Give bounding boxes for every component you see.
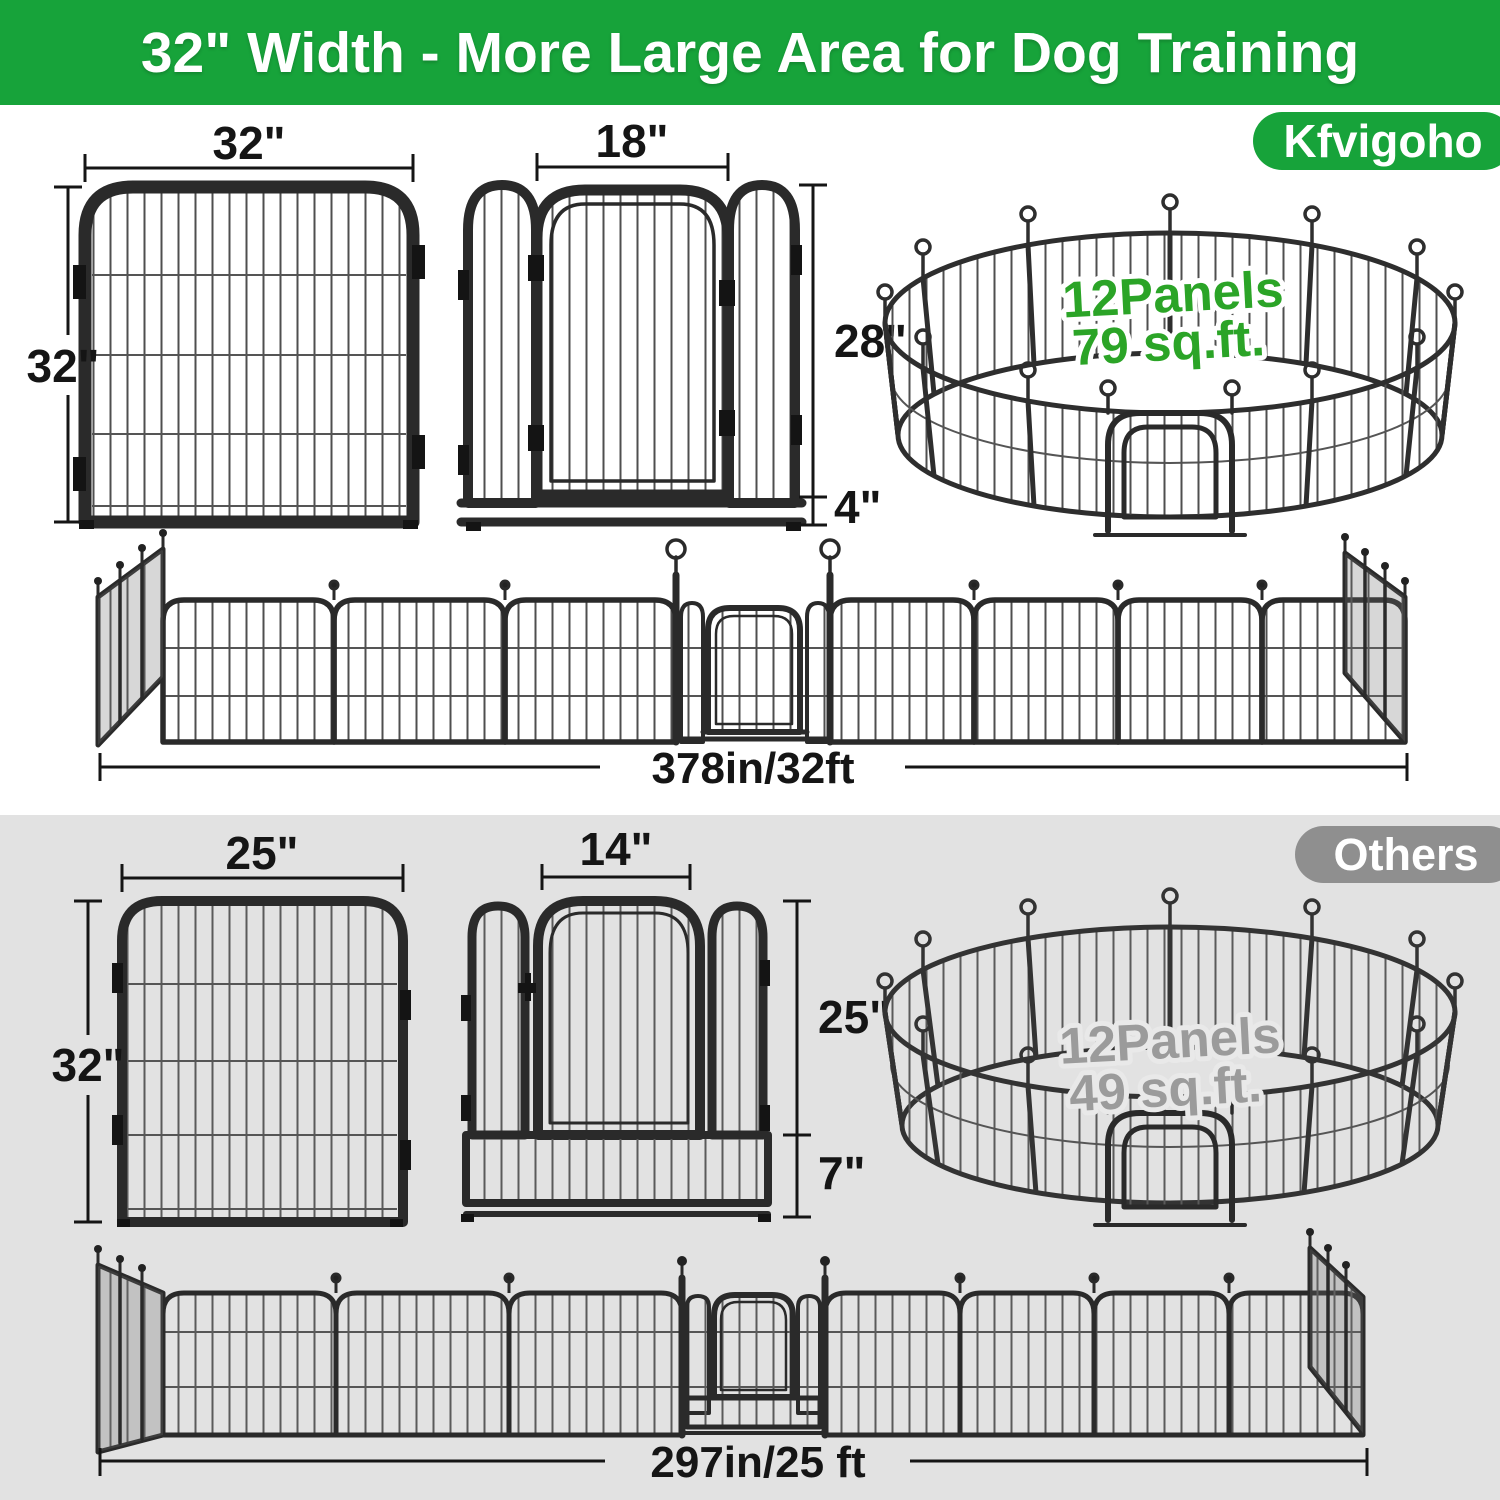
others-section: 25" 32" 14" 25" 7" (0, 815, 1500, 1500)
fence-row-others: 297in/25 ft (94, 1228, 1367, 1487)
door-height-dimension: 25" 7" (783, 901, 891, 1217)
fence-door (667, 540, 839, 742)
header-title: 32" Width - More Large Area for Dog Trai… (141, 20, 1359, 86)
fence-door (677, 1256, 830, 1435)
panel-diagram-others: 25" 32" (52, 827, 411, 1227)
panel-width-label: 25" (226, 827, 299, 879)
fence-length-label: 297in/25 ft (650, 1438, 866, 1487)
fence-post-pins (332, 1274, 1233, 1293)
playpen-ours: 12Panels 79 sq.ft. (878, 195, 1462, 535)
panel-height-label: 32" (27, 340, 100, 392)
fence-length-label: 378in/32ft (652, 744, 855, 793)
door-bottom-gap-label: 4" (834, 481, 881, 533)
panel-diagram-ours: 32" 32" (27, 117, 425, 529)
door-width-dimension: 18" (537, 115, 728, 181)
header-banner: 32" Width - More Large Area for Dog Trai… (0, 0, 1500, 105)
playpen-others: 12Panels 49 sq.ft. (878, 889, 1462, 1225)
door-bottom-gap-label: 7" (818, 1147, 865, 1199)
door-panel-diagram-ours: 18" 28" 4" (458, 115, 907, 533)
panel-width-dimension: 25" (122, 827, 403, 892)
door-height-label: 25" (818, 991, 891, 1043)
panel-height-label: 32" (52, 1039, 125, 1091)
fence-row-ours: 378in/32ft (94, 529, 1409, 793)
playpen-caption-ours: 12Panels 79 sq.ft. (1061, 260, 1287, 376)
playpen-area-label: 79 sq.ft. (1071, 309, 1266, 376)
panel-width-label: 32" (213, 117, 286, 169)
door-panel-diagram-others: 14" 25" 7" (461, 823, 891, 1222)
fence-left-wing (94, 529, 167, 745)
ours-section: 32" 32" 18" 28" 4" (0, 105, 1500, 815)
fence-length-dimension: 378in/32ft (100, 744, 1407, 793)
panel-height-dimension: 32" (52, 901, 125, 1222)
fence-left-wing (94, 1245, 163, 1452)
playpen-area-label: 49 sq.ft. (1068, 1055, 1263, 1122)
fence-length-dimension: 297in/25 ft (100, 1438, 1367, 1487)
door-width-label: 18" (596, 115, 669, 167)
door-width-label: 14" (580, 823, 653, 875)
fence-post-pins (330, 581, 1266, 600)
door-width-dimension: 14" (542, 823, 690, 890)
panel-width-dimension: 32" (85, 117, 413, 182)
playpen-caption-others: 12Panels 49 sq.ft. (1058, 1006, 1284, 1122)
